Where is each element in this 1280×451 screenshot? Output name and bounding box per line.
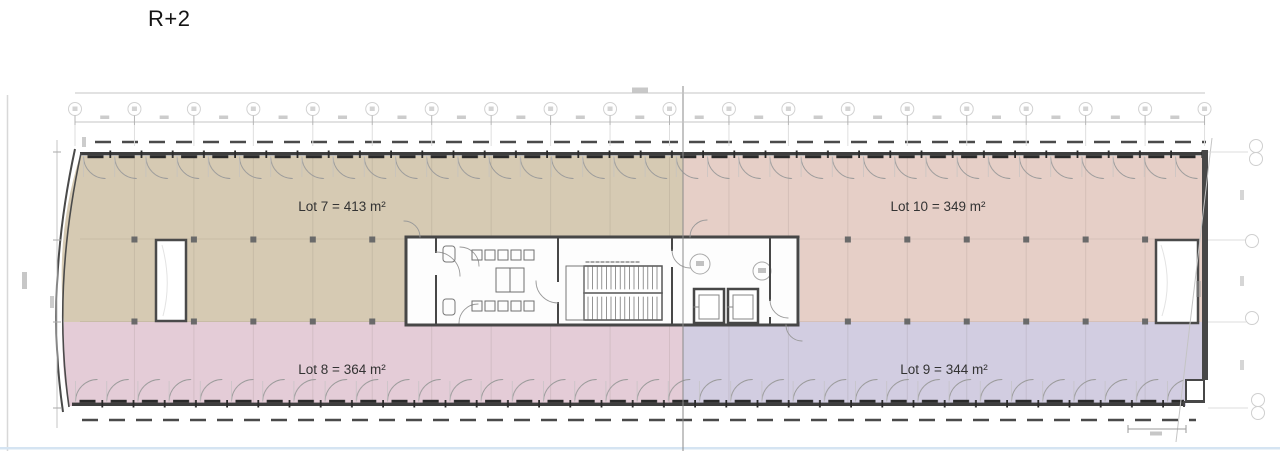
lot-8-label: Lot 8 = 364 m² — [232, 362, 452, 377]
column — [191, 319, 197, 325]
column — [369, 237, 375, 243]
column — [1142, 319, 1148, 325]
page-bottom-rule — [0, 447, 1280, 450]
lot-7-label: Lot 7 = 413 m² — [232, 199, 452, 214]
column — [1142, 237, 1148, 243]
column — [845, 319, 851, 325]
column — [964, 237, 970, 243]
overall-dim-text — [632, 88, 648, 93]
south-facade — [72, 376, 1184, 408]
column — [131, 319, 137, 325]
column — [191, 237, 197, 243]
right-dim-text — [1196, 281, 1201, 297]
top-grid-bubbles — [69, 103, 1212, 147]
column — [131, 237, 137, 243]
column — [904, 237, 910, 243]
column — [250, 237, 256, 243]
right-grid-bubbles — [1246, 140, 1265, 420]
left-dim-text — [22, 272, 27, 289]
lot-9-label: Lot 9 = 344 m² — [834, 362, 1054, 377]
core — [404, 220, 802, 341]
column — [904, 319, 910, 325]
column — [1083, 319, 1089, 325]
left-shaft-room — [156, 240, 186, 321]
column — [310, 237, 316, 243]
floorplan-page: R+2 — [0, 0, 1280, 451]
column — [845, 237, 851, 243]
column — [310, 319, 316, 325]
column — [1023, 237, 1029, 243]
detail-dim-text — [1150, 432, 1162, 436]
lot-10-label: Lot 10 = 349 m² — [828, 199, 1048, 214]
column — [1023, 319, 1029, 325]
column — [1083, 237, 1089, 243]
column — [369, 319, 375, 325]
floorplan-drawing — [0, 0, 1280, 451]
column — [964, 319, 970, 325]
north-facade — [80, 150, 1204, 182]
column — [250, 319, 256, 325]
